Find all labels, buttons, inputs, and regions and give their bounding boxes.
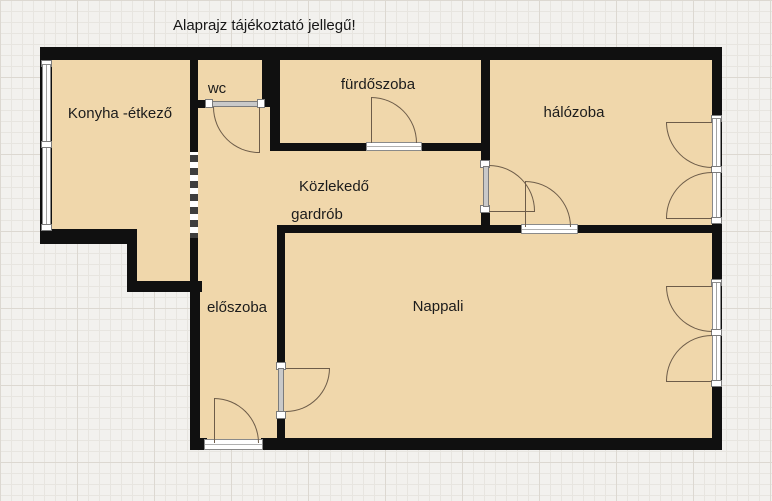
label-living: Nappali [378,298,498,316]
bedroom-window-cap-middle [711,166,722,173]
label-kitchen: Konyha -étkező [60,105,180,123]
wall-mid-horizontal-left [277,225,522,233]
wall-bathroom-bottom-left [270,143,368,151]
wall-kitchen-corridor-lower [190,238,198,286]
wall-kitchen-bottom [40,229,137,244]
wall-entry-living-upper [277,225,285,363]
label-bedroom: hálózoba [514,104,634,122]
kitchen-window-cap-middle [41,141,52,148]
living-door-jamb-bottom [276,411,286,419]
bedroom-window-cap-bottom [711,217,722,224]
living-door-leaf [278,368,284,412]
label-wardrobe: gardrób [257,206,377,224]
wall-right [712,47,722,450]
plan-title: Alaprajz tájékoztató jellegű! [173,17,356,34]
wall-top [40,47,722,60]
floor-fill-middle [137,240,718,292]
label-hallway: Közlekedő [274,178,394,196]
living-window-casement-bottom-panel [666,381,712,382]
living-window-cap-middle [711,329,722,336]
kitchen-window-cap-bottom [41,224,52,231]
wall-bathroom-bottom-right [420,143,482,151]
bedroom-window-casement-bottom-panel [666,218,712,219]
wall-bedroom-left-upper [481,52,490,162]
bathroom-door-threshold [366,142,422,151]
wall-mid-horizontal-right [577,225,722,233]
wall-bottom-main [261,438,722,450]
floor-plan: Alaprajz tájékoztató jellegű! [0,0,772,501]
living-window-cap-bottom [711,380,722,387]
opening-kitchen-corridor [190,152,198,238]
label-wc: wc [157,80,277,98]
label-entry: előszoba [177,299,297,317]
wc-door-panel [259,107,260,153]
wall-entry-living-lower [277,418,285,440]
label-bathroom: fürdőszoba [318,76,438,94]
